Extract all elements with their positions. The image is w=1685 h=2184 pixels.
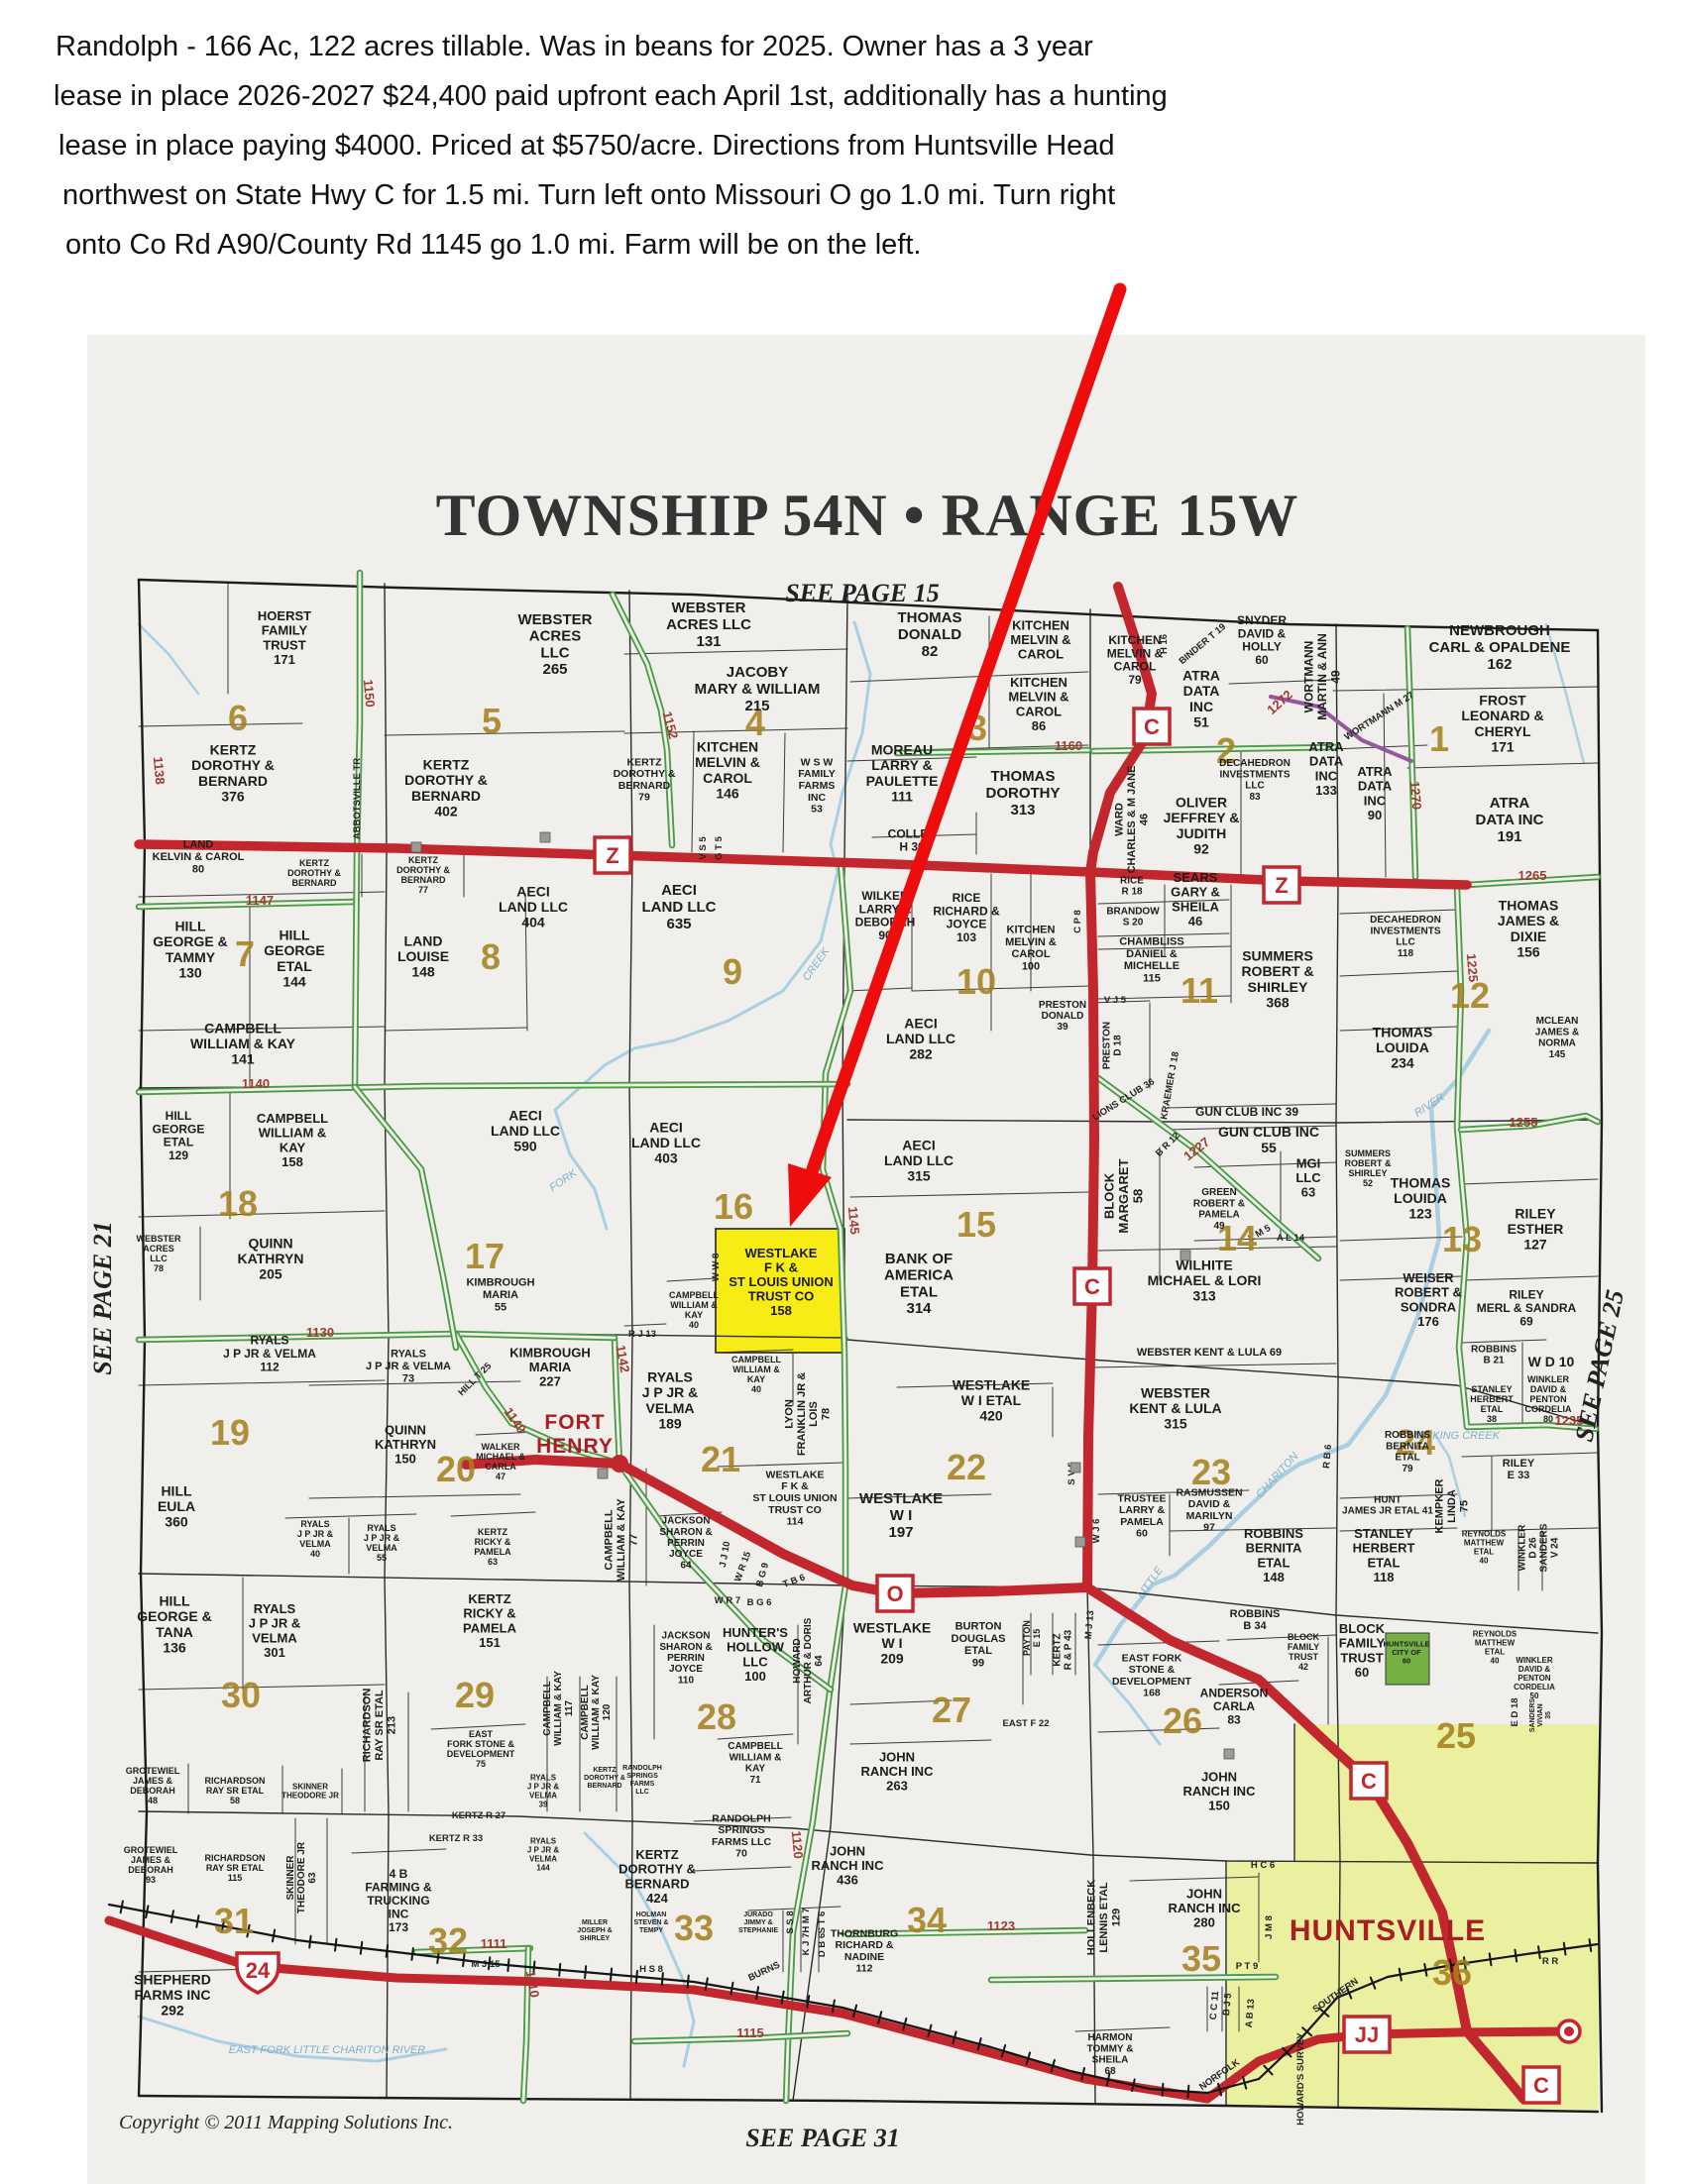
building-square [1070, 1463, 1080, 1473]
svg-text:Z: Z [1275, 873, 1288, 898]
building-square [1075, 1537, 1085, 1547]
section-number: 25 [1436, 1715, 1476, 1756]
highway-badge-o: O [877, 1576, 913, 1611]
section-number: 13 [1442, 1219, 1482, 1259]
owner-code-label: W W 8 [711, 1254, 722, 1282]
town-huntsville: HUNTSVILLE [1290, 1914, 1486, 1947]
svg-text:C: C [1361, 1769, 1377, 1794]
railroad-tick [559, 1964, 560, 1976]
map-layers: 1152116011471150113812651225125512271270… [87, 335, 1645, 2184]
parcel-label: MILLERJOSEPH &SHIRLEY [577, 1919, 612, 1942]
highway-badge-c: C [1134, 709, 1170, 744]
building-square [411, 842, 421, 852]
highway-badge-z: Z [1264, 867, 1299, 903]
owner-code-label: C P 8 [1072, 910, 1083, 933]
road-number-label: 1120 [789, 1830, 806, 1859]
owner-code-label: S T 6 [817, 1911, 828, 1934]
road-number-label: 1265 [1518, 868, 1547, 883]
building-square [598, 1469, 608, 1478]
highway-badge-z: Z [595, 837, 630, 873]
railroad-tick [636, 1971, 637, 1983]
road-number-label: 1140 [242, 1076, 270, 1091]
road-number-label: 1123 [987, 1918, 1015, 1933]
section-number: 8 [481, 936, 501, 977]
section-number: 20 [436, 1449, 476, 1489]
owner-code-label: M J 15 [471, 1959, 501, 1970]
owner-code-label: KERTZ R 33 [429, 1833, 483, 1844]
road-number-label: 1150 [361, 679, 378, 708]
owner-code-label: K J 7 [801, 1933, 812, 1956]
owner-code-label: EAST F 22 [1003, 1718, 1050, 1729]
owner-code-label: P T 9 [1236, 1961, 1259, 1972]
road-number-label: 1115 [736, 2025, 764, 2040]
section-number: 18 [218, 1183, 258, 1224]
owner-code-label: R B 6 [1321, 1444, 1334, 1469]
owner-code-label: E D 18 [1510, 1697, 1520, 1726]
railroad-tick [507, 1959, 508, 1971]
see-page-bottom: SEE PAGE 31 [745, 2124, 900, 2152]
copyright-notice: Copyright © 2011 Mapping Solutions Inc. [119, 2112, 453, 2133]
highway-badge-c: C [1074, 1268, 1110, 1304]
railroad-tick [411, 1948, 412, 1960]
section-number: 1 [1429, 718, 1449, 759]
owner-code-label: S S 8 [785, 1911, 796, 1933]
section-number: 10 [956, 961, 996, 1002]
svg-text:C: C [1533, 2073, 1549, 2098]
highway-badge-jj: JJ [1344, 2017, 1390, 2052]
svg-text:Z: Z [606, 843, 618, 868]
section-number: 22 [947, 1447, 986, 1487]
building-square [1180, 1251, 1190, 1260]
railroad-tick [1187, 2086, 1188, 2098]
railroad-tick [611, 1969, 612, 1981]
railroad-tick [335, 1939, 336, 1951]
parcel-label: KITCHENMELVIN &CAROL [1010, 617, 1070, 661]
building-square [1224, 1749, 1234, 1759]
owner-code-label: H C 6 [1251, 1860, 1275, 1871]
railroad-tick [1163, 2084, 1164, 2096]
road-number-label: 1145 [845, 1206, 862, 1235]
parcel-label: KERTZR & P 43 [1052, 1629, 1073, 1670]
svg-text:O: O [886, 1582, 903, 1606]
road-number-label: 1147 [246, 893, 274, 908]
owner-code-label: B G 6 [747, 1597, 772, 1608]
owner-code-label: A L 14 [1277, 1233, 1305, 1244]
owner-code-label: R R [1542, 1956, 1559, 1967]
road-number-label: 1138 [151, 756, 168, 785]
section-number: 7 [235, 933, 255, 974]
see-page-top: SEE PAGE 15 [785, 579, 940, 607]
fort-henry-dot [611, 1455, 628, 1473]
section-number: 15 [956, 1204, 996, 1245]
owner-code-label: KERTZ R 27 [452, 1810, 505, 1821]
svg-text:24: 24 [246, 1958, 271, 1983]
owner-code-label: W R 7 [715, 1595, 740, 1606]
owner-code-label: D B 6 [817, 1933, 828, 1957]
section-number: 11 [1180, 970, 1218, 1011]
owner-code-label: G T 5 [714, 835, 725, 859]
section-number: 12 [1450, 975, 1490, 1016]
svg-text:C: C [1084, 1274, 1100, 1299]
railroad-tick [309, 1936, 310, 1948]
see-page-left: SEE PAGE 21 [88, 1221, 117, 1375]
section-number: 29 [455, 1675, 495, 1715]
section-number: 28 [697, 1696, 736, 1737]
parcel-label: GUN CLUB INC 39 [1195, 1105, 1298, 1119]
section-number: 30 [221, 1675, 261, 1715]
owner-code-label: W J 6 [1091, 1519, 1102, 1544]
road-number-label: 1160 [1055, 738, 1082, 753]
plat-map: 1152116011471150113812651225125512271270… [0, 0, 1685, 2184]
railroad-tick [361, 1942, 362, 1954]
water-label: EAST FORK LITTLE CHARITON RIVER [229, 2044, 425, 2056]
section-number: 36 [1432, 1952, 1472, 1993]
owner-code-label: B J 5 [1221, 1992, 1234, 2016]
svg-text:JJ: JJ [1355, 2022, 1379, 2047]
section-number: 19 [210, 1412, 250, 1453]
svg-text:C: C [1144, 714, 1160, 739]
parcel-label: WEBSTER KENT & LULA 69 [1137, 1347, 1282, 1359]
parcel-label: JURADOJIMMY &STEPHANIE [738, 1911, 778, 1934]
road-number-label: 1130 [306, 1325, 334, 1340]
section-number: 9 [723, 951, 742, 992]
highway-badge-c: C [1351, 1763, 1387, 1799]
owner-code-label: ABBOTSVILLE TR [352, 758, 363, 839]
railroad-tick [688, 1976, 689, 1988]
section-number: 27 [932, 1690, 971, 1730]
section-number: 33 [674, 1908, 714, 1948]
railroad-tick [585, 1966, 586, 1978]
map-title: TOWNSHIP 54N • RANGE 15W [436, 483, 1299, 548]
section-number: 35 [1181, 1938, 1221, 1979]
parcel-label: W D 10 [1528, 1354, 1575, 1369]
section-number: 17 [465, 1236, 505, 1276]
section-number: 34 [907, 1900, 947, 1940]
railroad-tick [387, 1945, 388, 1957]
section-number: 21 [701, 1439, 740, 1479]
road-number-label: 1255 [1510, 1115, 1538, 1130]
highway-badge-c: C [1523, 2067, 1559, 2103]
town-fort-henry: FORTHENRY [536, 1411, 614, 1458]
section-number: 31 [214, 1901, 254, 1941]
owner-code-label: H S 8 [639, 1964, 663, 1975]
section-number: 16 [714, 1186, 753, 1227]
road-number-label: 1111 [481, 1936, 507, 1951]
section-number: 5 [482, 701, 502, 741]
owner-code-label: V J 5 [1104, 995, 1127, 1006]
parcel-label: RICER 18 [1120, 875, 1144, 897]
owner-code-label: J M 8 [1264, 1915, 1275, 1939]
building-square [540, 832, 550, 842]
owner-code-label: H M 7 [801, 1908, 812, 1932]
huntsville-target-inner [1564, 2026, 1574, 2036]
owner-code-label: R J 13 [628, 1329, 656, 1340]
owner-code-label: HOWARD'S SURVEY [1295, 2032, 1306, 2126]
section-number: 32 [428, 1920, 468, 1961]
owner-code-label: V S 5 [698, 836, 709, 860]
road-number-label: 1270 [1407, 781, 1424, 811]
section-number: 26 [1163, 1700, 1202, 1741]
section-number: 6 [228, 698, 248, 738]
